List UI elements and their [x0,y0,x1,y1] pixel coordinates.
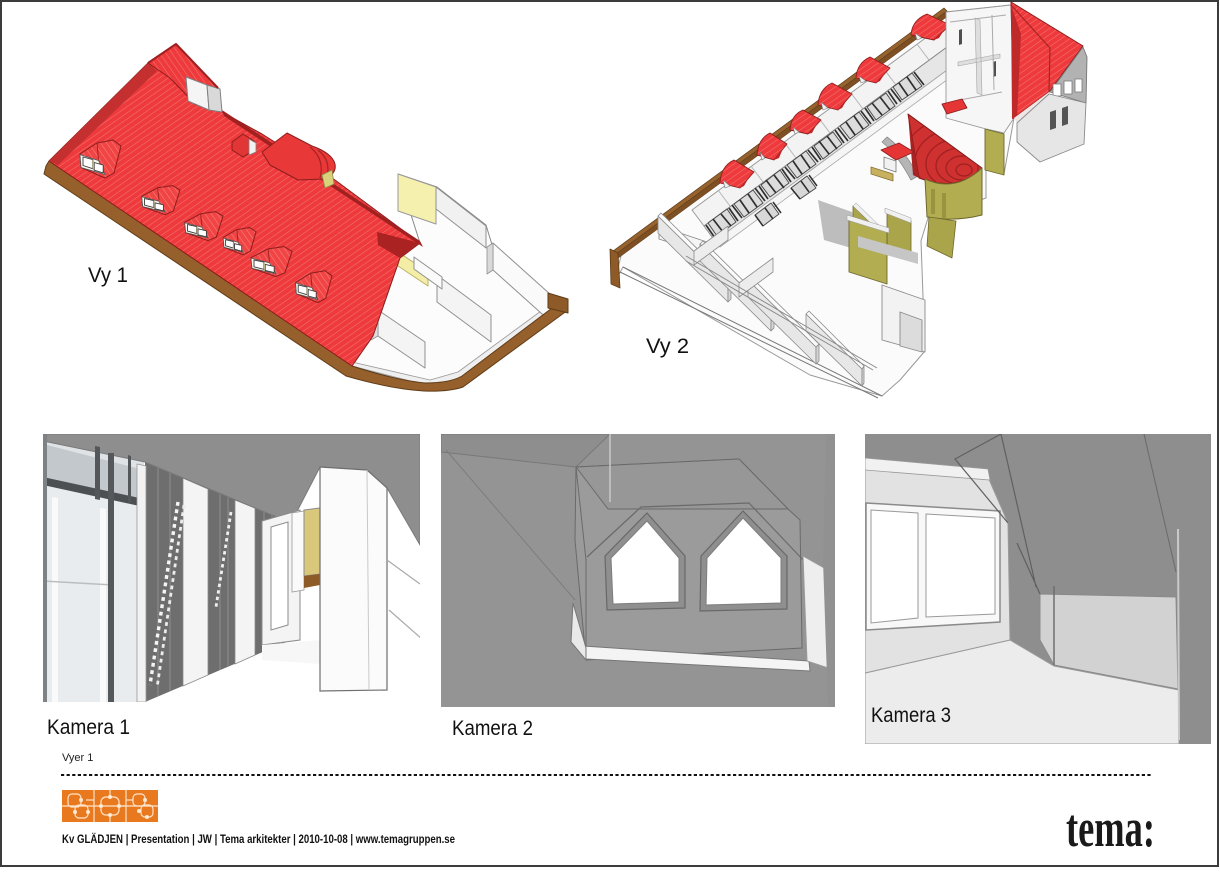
svg-text:Vyer 1: Vyer 1 [62,752,93,764]
svg-text:Kv GLÄDJEN | Presentation |: Kv GLÄDJEN | Presentation | JW | Tema ar… [62,833,455,846]
svg-text:Vy 2: Vy 2 [646,335,689,358]
svg-text:Kamera 2: Kamera 2 [452,717,533,740]
svg-text:Kamera 1: Kamera 1 [47,716,130,739]
svg-text:Vy 1: Vy 1 [88,264,128,287]
svg-text:Kamera 3: Kamera 3 [871,704,951,727]
svg-text:tema:: tema: [1066,798,1155,858]
